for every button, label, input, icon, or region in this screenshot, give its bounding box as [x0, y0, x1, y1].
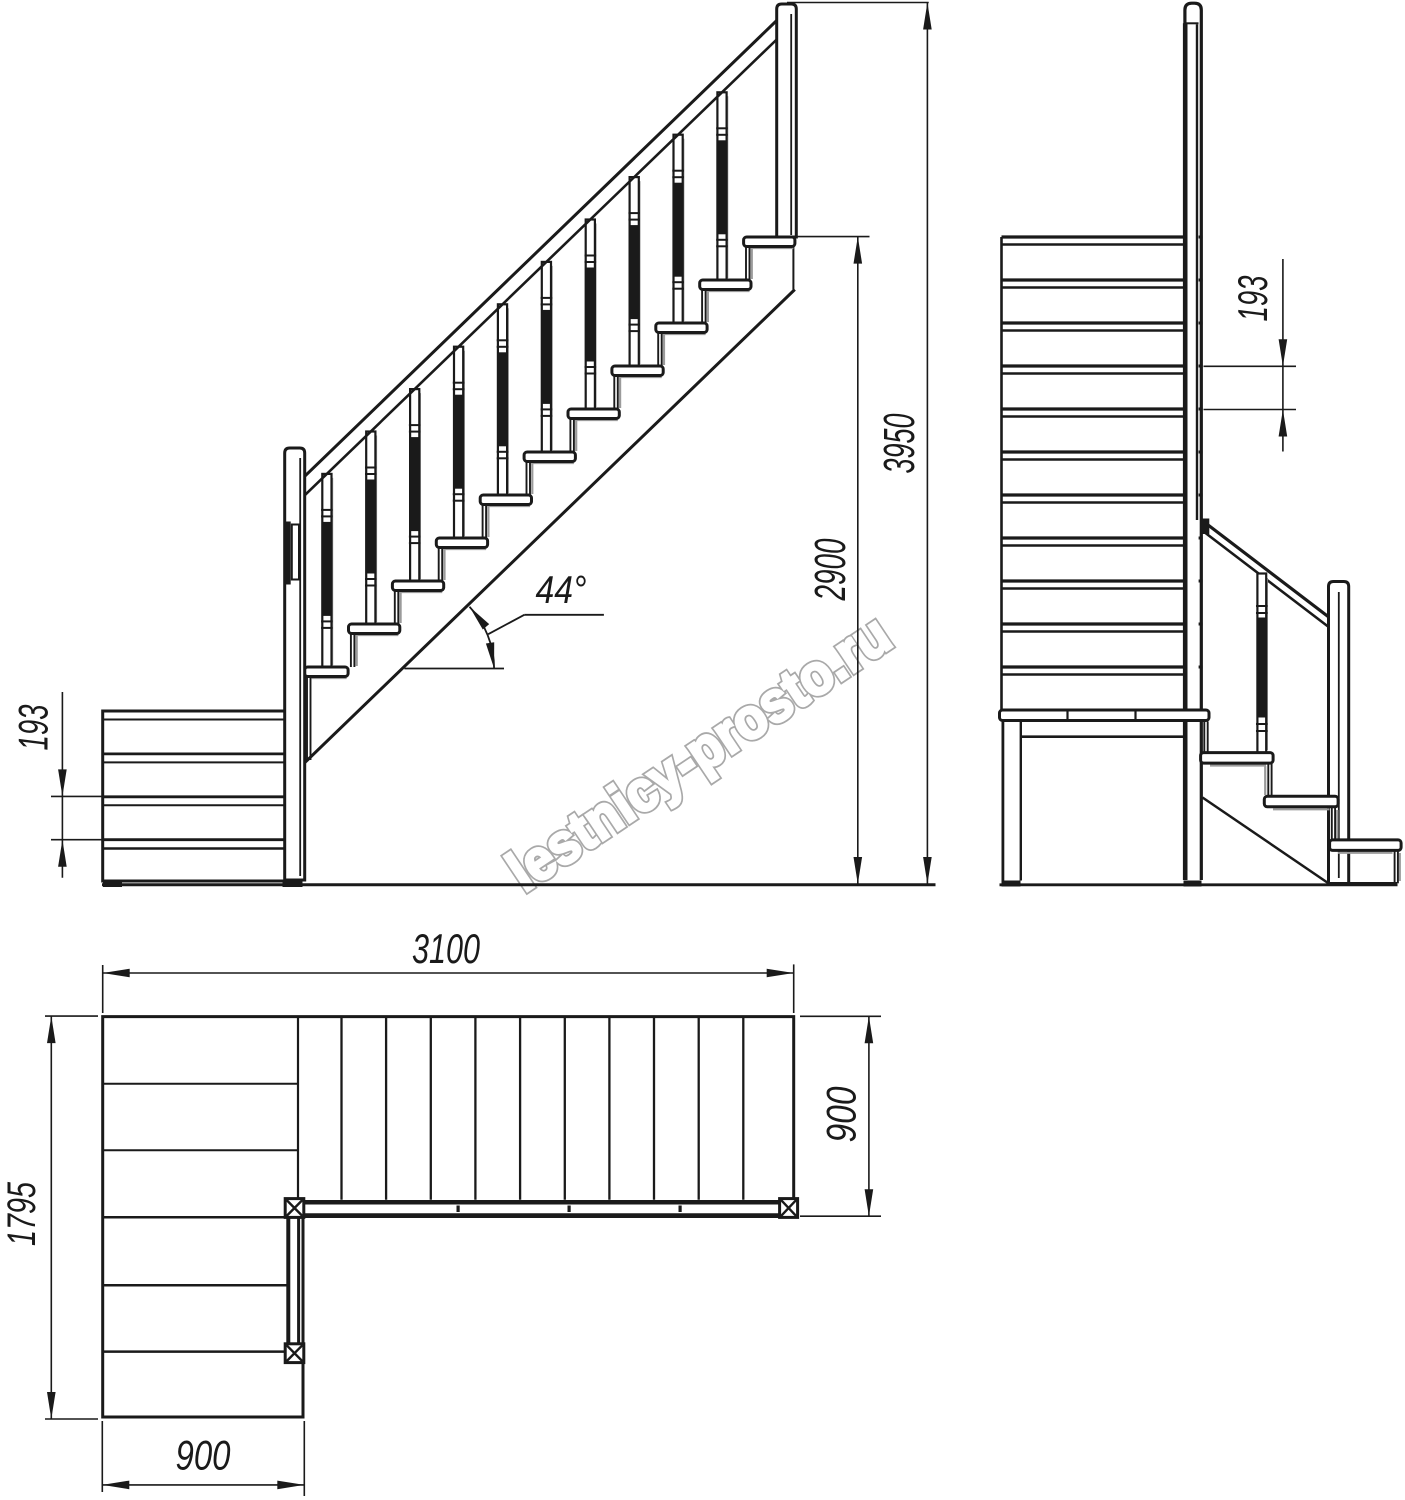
svg-text:900: 900	[818, 1086, 865, 1143]
svg-text:193: 193	[1229, 276, 1276, 322]
svg-text:3950: 3950	[875, 413, 924, 473]
svg-text:900: 900	[176, 1432, 232, 1479]
svg-text:1795: 1795	[0, 1181, 44, 1246]
svg-text:3100: 3100	[412, 925, 480, 972]
svg-text:44°: 44°	[536, 569, 587, 612]
svg-text:2900: 2900	[806, 538, 855, 601]
svg-text:193: 193	[10, 705, 57, 751]
